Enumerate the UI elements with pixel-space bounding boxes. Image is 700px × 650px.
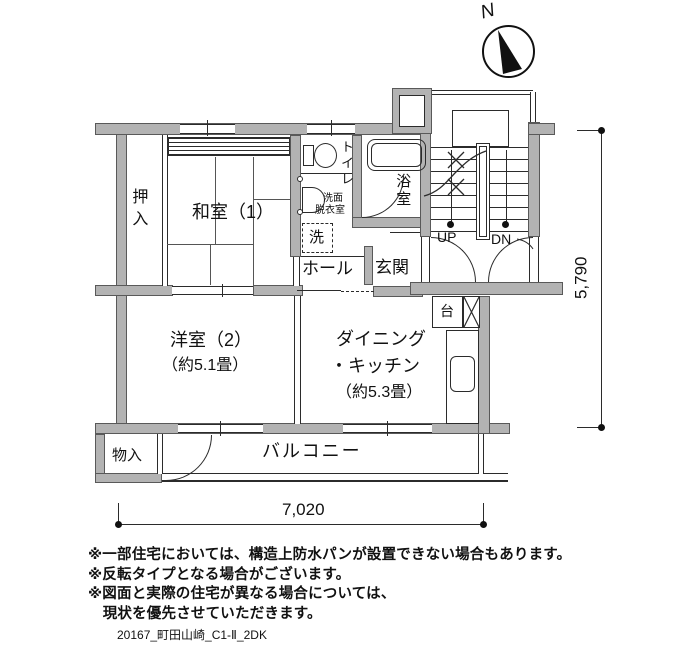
note-line: ※反転タイプとなる場合がございます。 (88, 566, 571, 586)
room-label-hall: ホール (302, 259, 353, 279)
wall-bottom (95, 423, 510, 434)
wall-washitsu-right (290, 135, 301, 257)
stair-landing (452, 110, 509, 147)
window-band-washitsu (168, 137, 290, 156)
duct-shaft-inner (399, 95, 425, 127)
dim-height-label: 5,790 (572, 257, 592, 300)
dim-h-line (118, 524, 484, 525)
note-line: 現状を優先させていただきます。 (88, 605, 571, 625)
bathtub-inner (371, 143, 422, 167)
room-label-oshiire: 押入 (128, 188, 146, 232)
stair-top-outline (432, 90, 533, 95)
hall-dk-dashed-line (341, 291, 374, 292)
stair-rail-inner (479, 146, 487, 237)
dim-h-dot (480, 521, 487, 528)
room-label-yoshitsu: 洋室（2） (170, 330, 252, 351)
dim-width-label: 7,020 (282, 500, 325, 520)
room-label-bath: 浴室 (394, 173, 411, 209)
monoire-right-wall (157, 434, 163, 474)
stair-up-path (451, 150, 452, 224)
room-label-washitsu: 和室（1） (192, 202, 274, 223)
drawing-id-footer: 20167_町田山崎_C1-Ⅱ_2DK (117, 629, 267, 643)
fusuma-door (172, 286, 253, 295)
stair-up-dot (447, 221, 454, 228)
wall-middle-center (253, 285, 303, 296)
wall-stair-top-stub (528, 123, 555, 135)
toilet-bowl-icon (314, 143, 337, 168)
note-line: ※一部住宅においては、構造上防水パンが設置できない場合もあります。 (88, 546, 571, 566)
washroom-hall-line (301, 256, 364, 257)
pipe-space-box (463, 296, 480, 328)
wall-hall-genkan (364, 246, 373, 285)
partition-hall-washitsu (293, 257, 300, 286)
front-door-sill (421, 237, 430, 283)
floor-plan: 7,020 5,790 N 押入 和室（1） トイレ 洗面 脱衣室 洗 浴室 ホ… (0, 0, 700, 650)
room-label-senmen2: 脱衣室 (315, 205, 345, 217)
compass-circle (482, 25, 535, 78)
room-label-dk-size: （約5.3畳） (336, 384, 422, 402)
compass-north-label: N (478, 0, 497, 24)
wall-left (116, 134, 127, 434)
room-label-dk2: ・キッチン (330, 356, 420, 377)
wall-top (95, 123, 425, 135)
tatami-line (215, 157, 216, 245)
partition-oshiire (162, 135, 168, 286)
stair-dn-dot (502, 221, 509, 228)
balcony-divider (478, 434, 484, 474)
wall-stair-bottom (410, 282, 563, 295)
room-label-balcony: バルコニー (262, 441, 362, 462)
stair-up-label: UP (437, 229, 456, 245)
stair-top-right-outline (530, 92, 536, 122)
kitchen-sink-icon (450, 356, 475, 392)
toilet-tank-icon (303, 145, 314, 166)
genkan-step-line (390, 232, 420, 233)
room-label-monoire: 物入 (112, 447, 142, 464)
fusuma-tick (222, 284, 223, 297)
window-tick (331, 120, 332, 136)
notes-block: ※一部住宅においては、構造上防水パンが設置できない場合もあります。 ※反転タイプ… (88, 546, 571, 624)
wall-middle-left (95, 285, 173, 296)
stair-dn-path (506, 150, 507, 224)
dim-h-dot (115, 521, 122, 528)
tatami-line (210, 245, 211, 285)
partition-yoshitsu-dk (294, 296, 301, 424)
stair-dn-label: DN (491, 231, 511, 247)
dim-v-dot (598, 424, 605, 431)
window-tick (387, 421, 388, 436)
dim-v-dot (598, 127, 605, 134)
wall-stair-right (528, 122, 540, 237)
room-label-senmen1: 洗面 (323, 193, 343, 205)
dim-v-line (601, 130, 602, 428)
door-pivot-dot (297, 176, 303, 182)
room-label-dk1: ダイニング (336, 329, 426, 350)
room-label-genkan: 玄関 (375, 258, 409, 278)
tatami-line (253, 199, 291, 200)
room-label-dai: 台 (440, 303, 454, 319)
room-label-yoshitsu-size: （約5.1畳） (162, 357, 248, 375)
wall-bath-bottom (352, 217, 430, 228)
room-label-toilet: トイレ (338, 140, 353, 188)
note-line: ※図面と実際の住宅が異なる場合については、 (88, 585, 571, 605)
window-tick (207, 120, 208, 136)
monoire-bottom-wall (95, 473, 162, 483)
window-tick (220, 421, 221, 436)
hall-step-line (297, 290, 341, 291)
room-label-laundry: 洗 (309, 229, 324, 246)
